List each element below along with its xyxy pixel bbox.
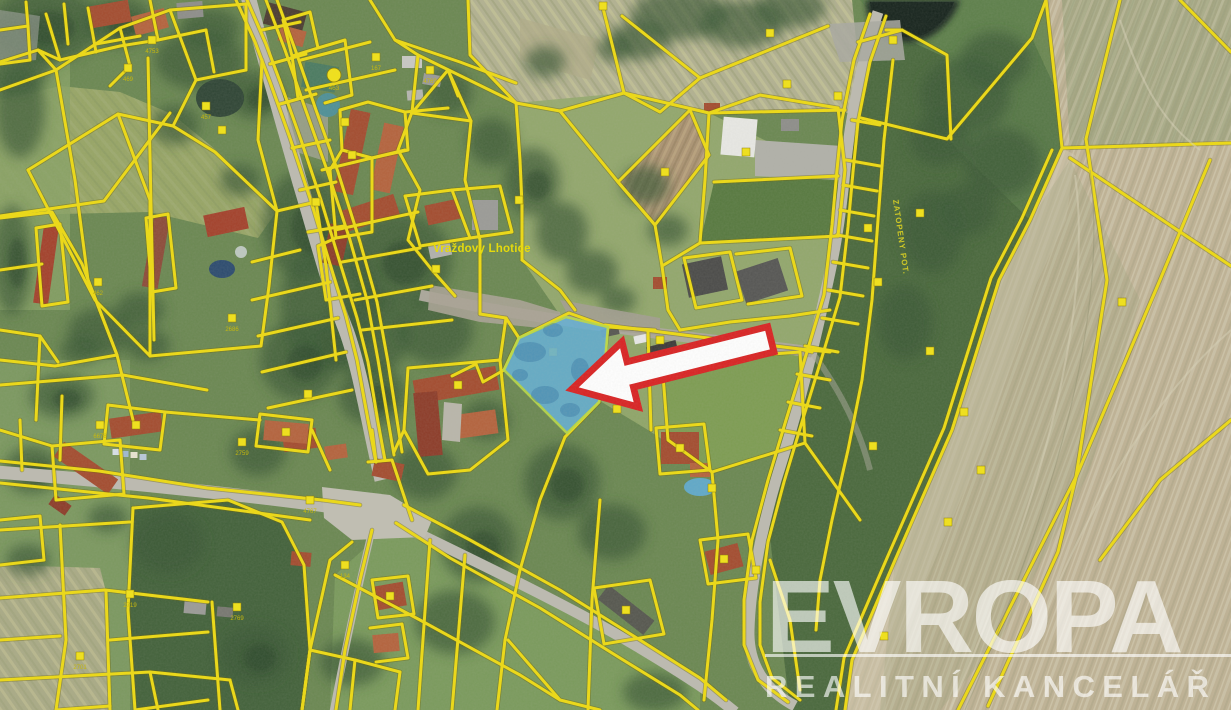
svg-text:REALITNÍ KANCELÁŘ: REALITNÍ KANCELÁŘ bbox=[765, 668, 1216, 704]
